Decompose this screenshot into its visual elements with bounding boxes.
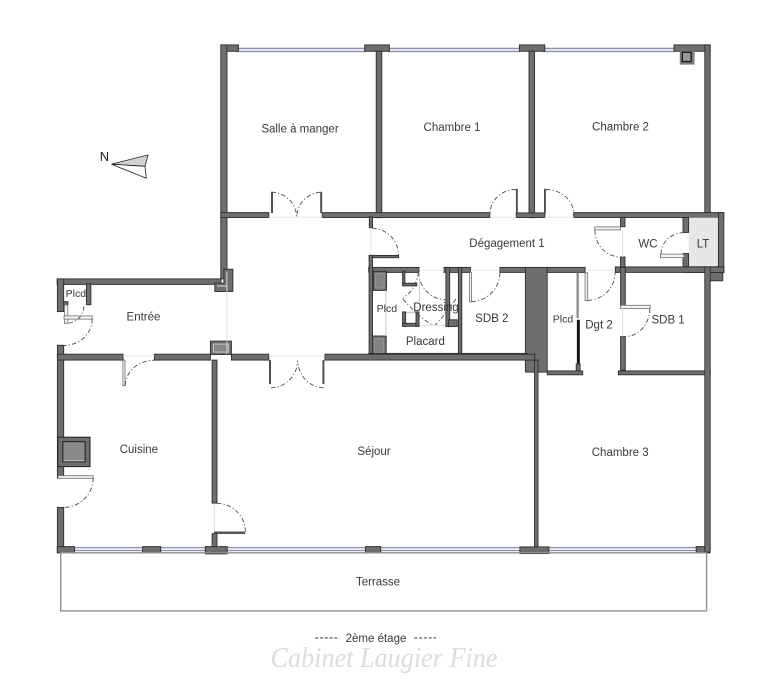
svg-text:SDB 1: SDB 1: [651, 315, 684, 327]
svg-text:Plcd: Plcd: [553, 313, 574, 325]
svg-text:Plcd: Plcd: [66, 288, 87, 300]
svg-text:Dégagement 1: Dégagement 1: [469, 238, 544, 250]
svg-text:Salle à manger: Salle à manger: [261, 123, 339, 135]
svg-text:WC: WC: [638, 238, 657, 250]
svg-text:Terrasse: Terrasse: [356, 577, 400, 589]
svg-text:Cuisine: Cuisine: [120, 444, 158, 456]
svg-text:Plcd: Plcd: [377, 303, 398, 315]
svg-text:Dgt 2: Dgt 2: [585, 320, 613, 332]
svg-text:Chambre 1: Chambre 1: [424, 122, 481, 134]
svg-text:Chambre 2: Chambre 2: [592, 121, 649, 133]
svg-text:N: N: [100, 149, 109, 164]
svg-text:Dressing: Dressing: [413, 302, 458, 314]
svg-text:SDB 2: SDB 2: [475, 313, 508, 325]
svg-text:Entrée: Entrée: [127, 312, 161, 324]
svg-text:Placard: Placard: [406, 336, 445, 348]
svg-text:LT: LT: [697, 238, 710, 250]
svg-text:Séjour: Séjour: [357, 446, 390, 458]
svg-text:Chambre 3: Chambre 3: [592, 447, 649, 459]
svg-text:Cabinet Laugier Fine: Cabinet Laugier Fine: [271, 643, 498, 674]
